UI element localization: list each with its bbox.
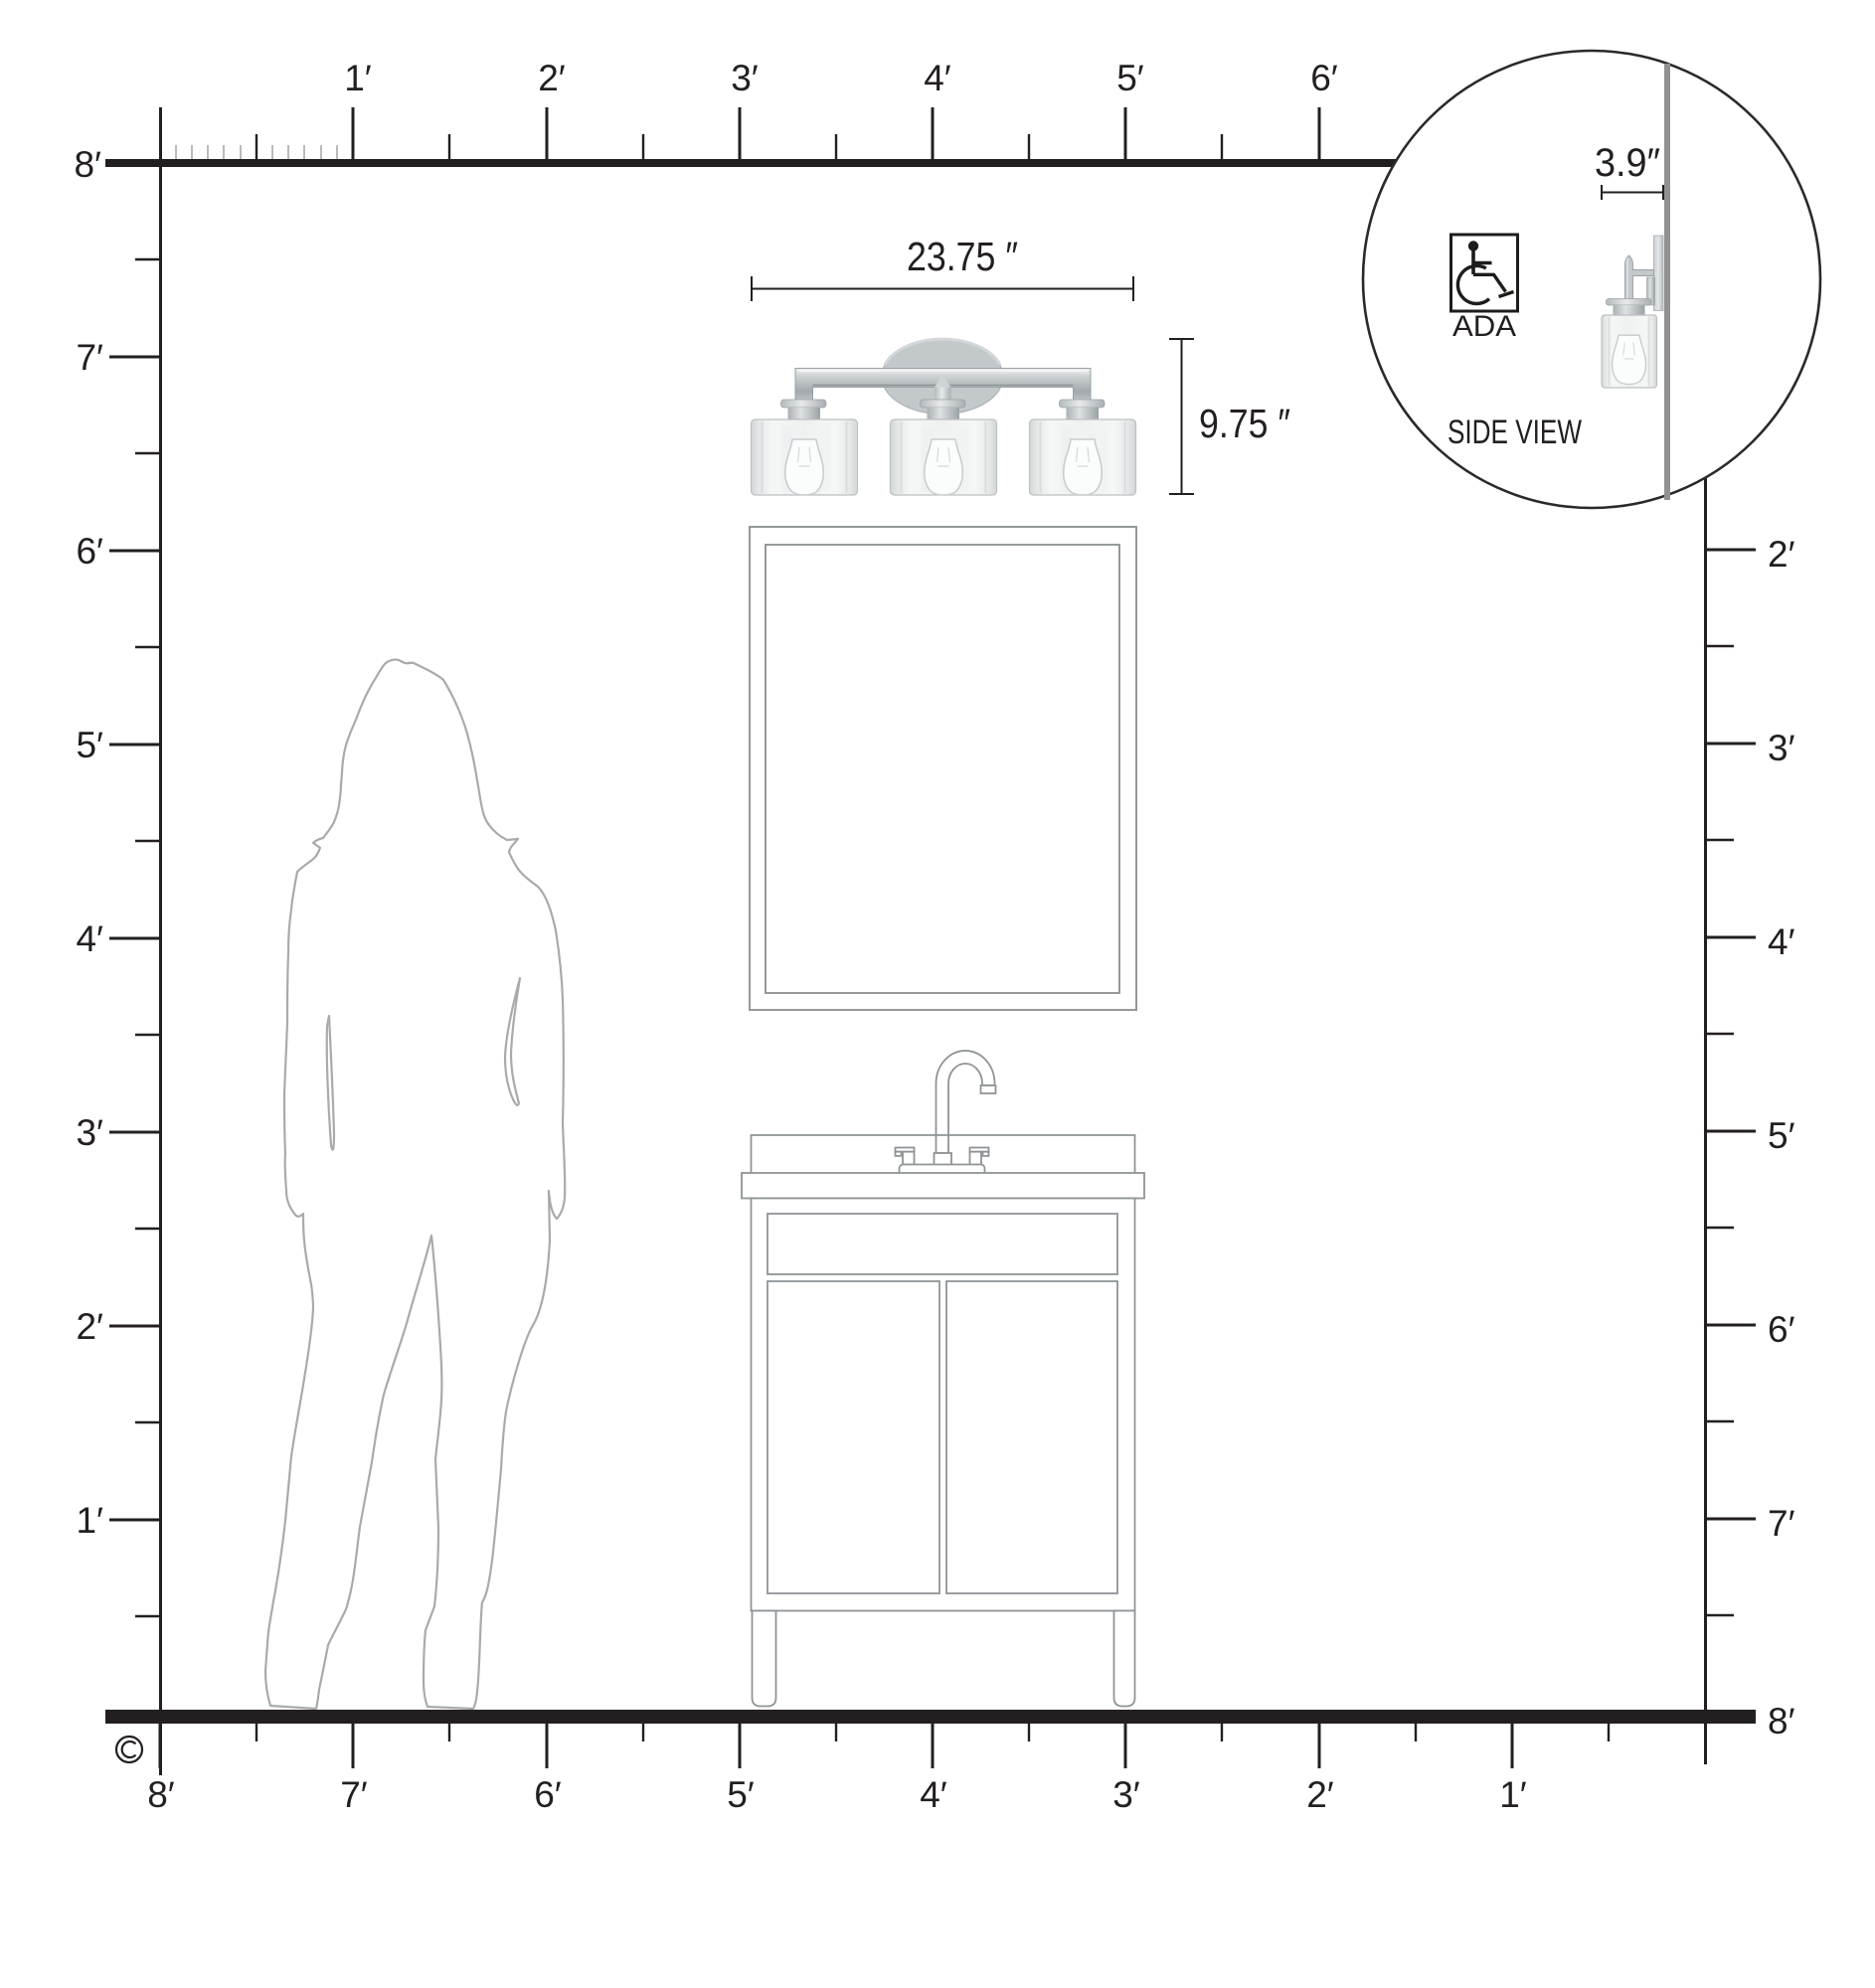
svg-text:9.75 ″: 9.75 ″ bbox=[1199, 401, 1290, 446]
svg-text:3′: 3′ bbox=[76, 1112, 103, 1153]
svg-text:4′: 4′ bbox=[76, 918, 103, 959]
svg-text:6′: 6′ bbox=[1310, 58, 1338, 98]
svg-text:2′: 2′ bbox=[538, 58, 566, 98]
svg-text:6′: 6′ bbox=[534, 1774, 562, 1815]
svg-text:1′: 1′ bbox=[76, 1500, 103, 1541]
svg-text:3′: 3′ bbox=[731, 58, 759, 98]
svg-text:5′: 5′ bbox=[1116, 58, 1144, 98]
svg-text:5′: 5′ bbox=[727, 1774, 755, 1815]
svg-text:7′: 7′ bbox=[76, 337, 103, 378]
svg-text:23.75 ″: 23.75 ″ bbox=[907, 234, 1018, 279]
svg-text:1′: 1′ bbox=[344, 58, 372, 98]
svg-text:4′: 4′ bbox=[1768, 921, 1795, 962]
svg-text:7′: 7′ bbox=[340, 1774, 368, 1815]
svg-text:3.9″: 3.9″ bbox=[1595, 141, 1660, 185]
svg-text:4′: 4′ bbox=[920, 1774, 947, 1815]
svg-text:2′: 2′ bbox=[1768, 534, 1795, 575]
svg-text:SIDE VIEW: SIDE VIEW bbox=[1448, 414, 1582, 451]
svg-text:3′: 3′ bbox=[1112, 1774, 1140, 1815]
svg-text:5′: 5′ bbox=[76, 725, 103, 765]
svg-text:6′: 6′ bbox=[76, 531, 103, 572]
svg-text:8′: 8′ bbox=[1768, 1701, 1795, 1741]
svg-text:4′: 4′ bbox=[924, 58, 951, 98]
svg-text:ADA: ADA bbox=[1452, 310, 1516, 343]
svg-text:5′: 5′ bbox=[1768, 1115, 1795, 1156]
svg-text:3′: 3′ bbox=[1768, 728, 1795, 768]
svg-text:8′: 8′ bbox=[74, 144, 101, 185]
svg-text:6′: 6′ bbox=[1768, 1309, 1795, 1350]
svg-text:8′: 8′ bbox=[147, 1774, 175, 1815]
svg-text:2′: 2′ bbox=[76, 1306, 103, 1347]
svg-text:7′: 7′ bbox=[1768, 1503, 1795, 1544]
svg-text:1′: 1′ bbox=[1499, 1774, 1527, 1815]
svg-text:2′: 2′ bbox=[1306, 1774, 1334, 1815]
